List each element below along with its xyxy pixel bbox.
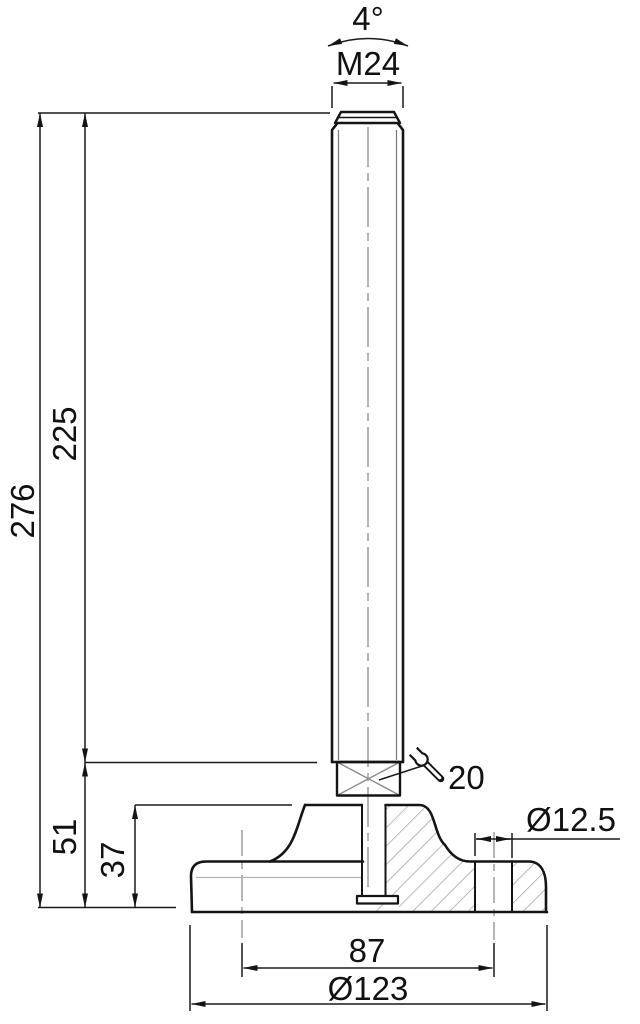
dimension-texts: 4° M24 276 225 51 37 20 Ø12.5 87 Ø123	[4, 0, 616, 1007]
dim-thread: M24	[336, 45, 400, 82]
dim-base-height: 37	[94, 842, 131, 879]
technical-drawing: 4° M24 276 225 51 37 20 Ø12.5 87 Ø123	[0, 0, 640, 1024]
dim-wrench-size: 20	[448, 759, 485, 796]
wrench-icon	[409, 747, 445, 783]
drawing-canvas: 4° M24 276 225 51 37 20 Ø12.5 87 Ø123	[0, 0, 640, 1024]
spindle-washer	[357, 896, 398, 904]
base-left-profile	[191, 862, 363, 913]
dim-spindle-length: 225	[46, 406, 83, 461]
dim-hole-spacing: 87	[349, 932, 386, 969]
ext-m24	[332, 86, 403, 108]
part-outlines	[191, 112, 547, 912]
dim-hole-diameter: Ø12.5	[526, 801, 616, 838]
dim-base-section-height: 51	[46, 819, 83, 856]
dim-base-diameter: Ø123	[328, 970, 409, 1007]
base-left-shoulder	[270, 805, 305, 862]
dim-total-height: 276	[4, 483, 41, 538]
dim-swivel-angle: 4°	[352, 0, 384, 37]
spindle-channel-walls	[362, 805, 386, 897]
auxiliary-lines	[196, 127, 494, 940]
